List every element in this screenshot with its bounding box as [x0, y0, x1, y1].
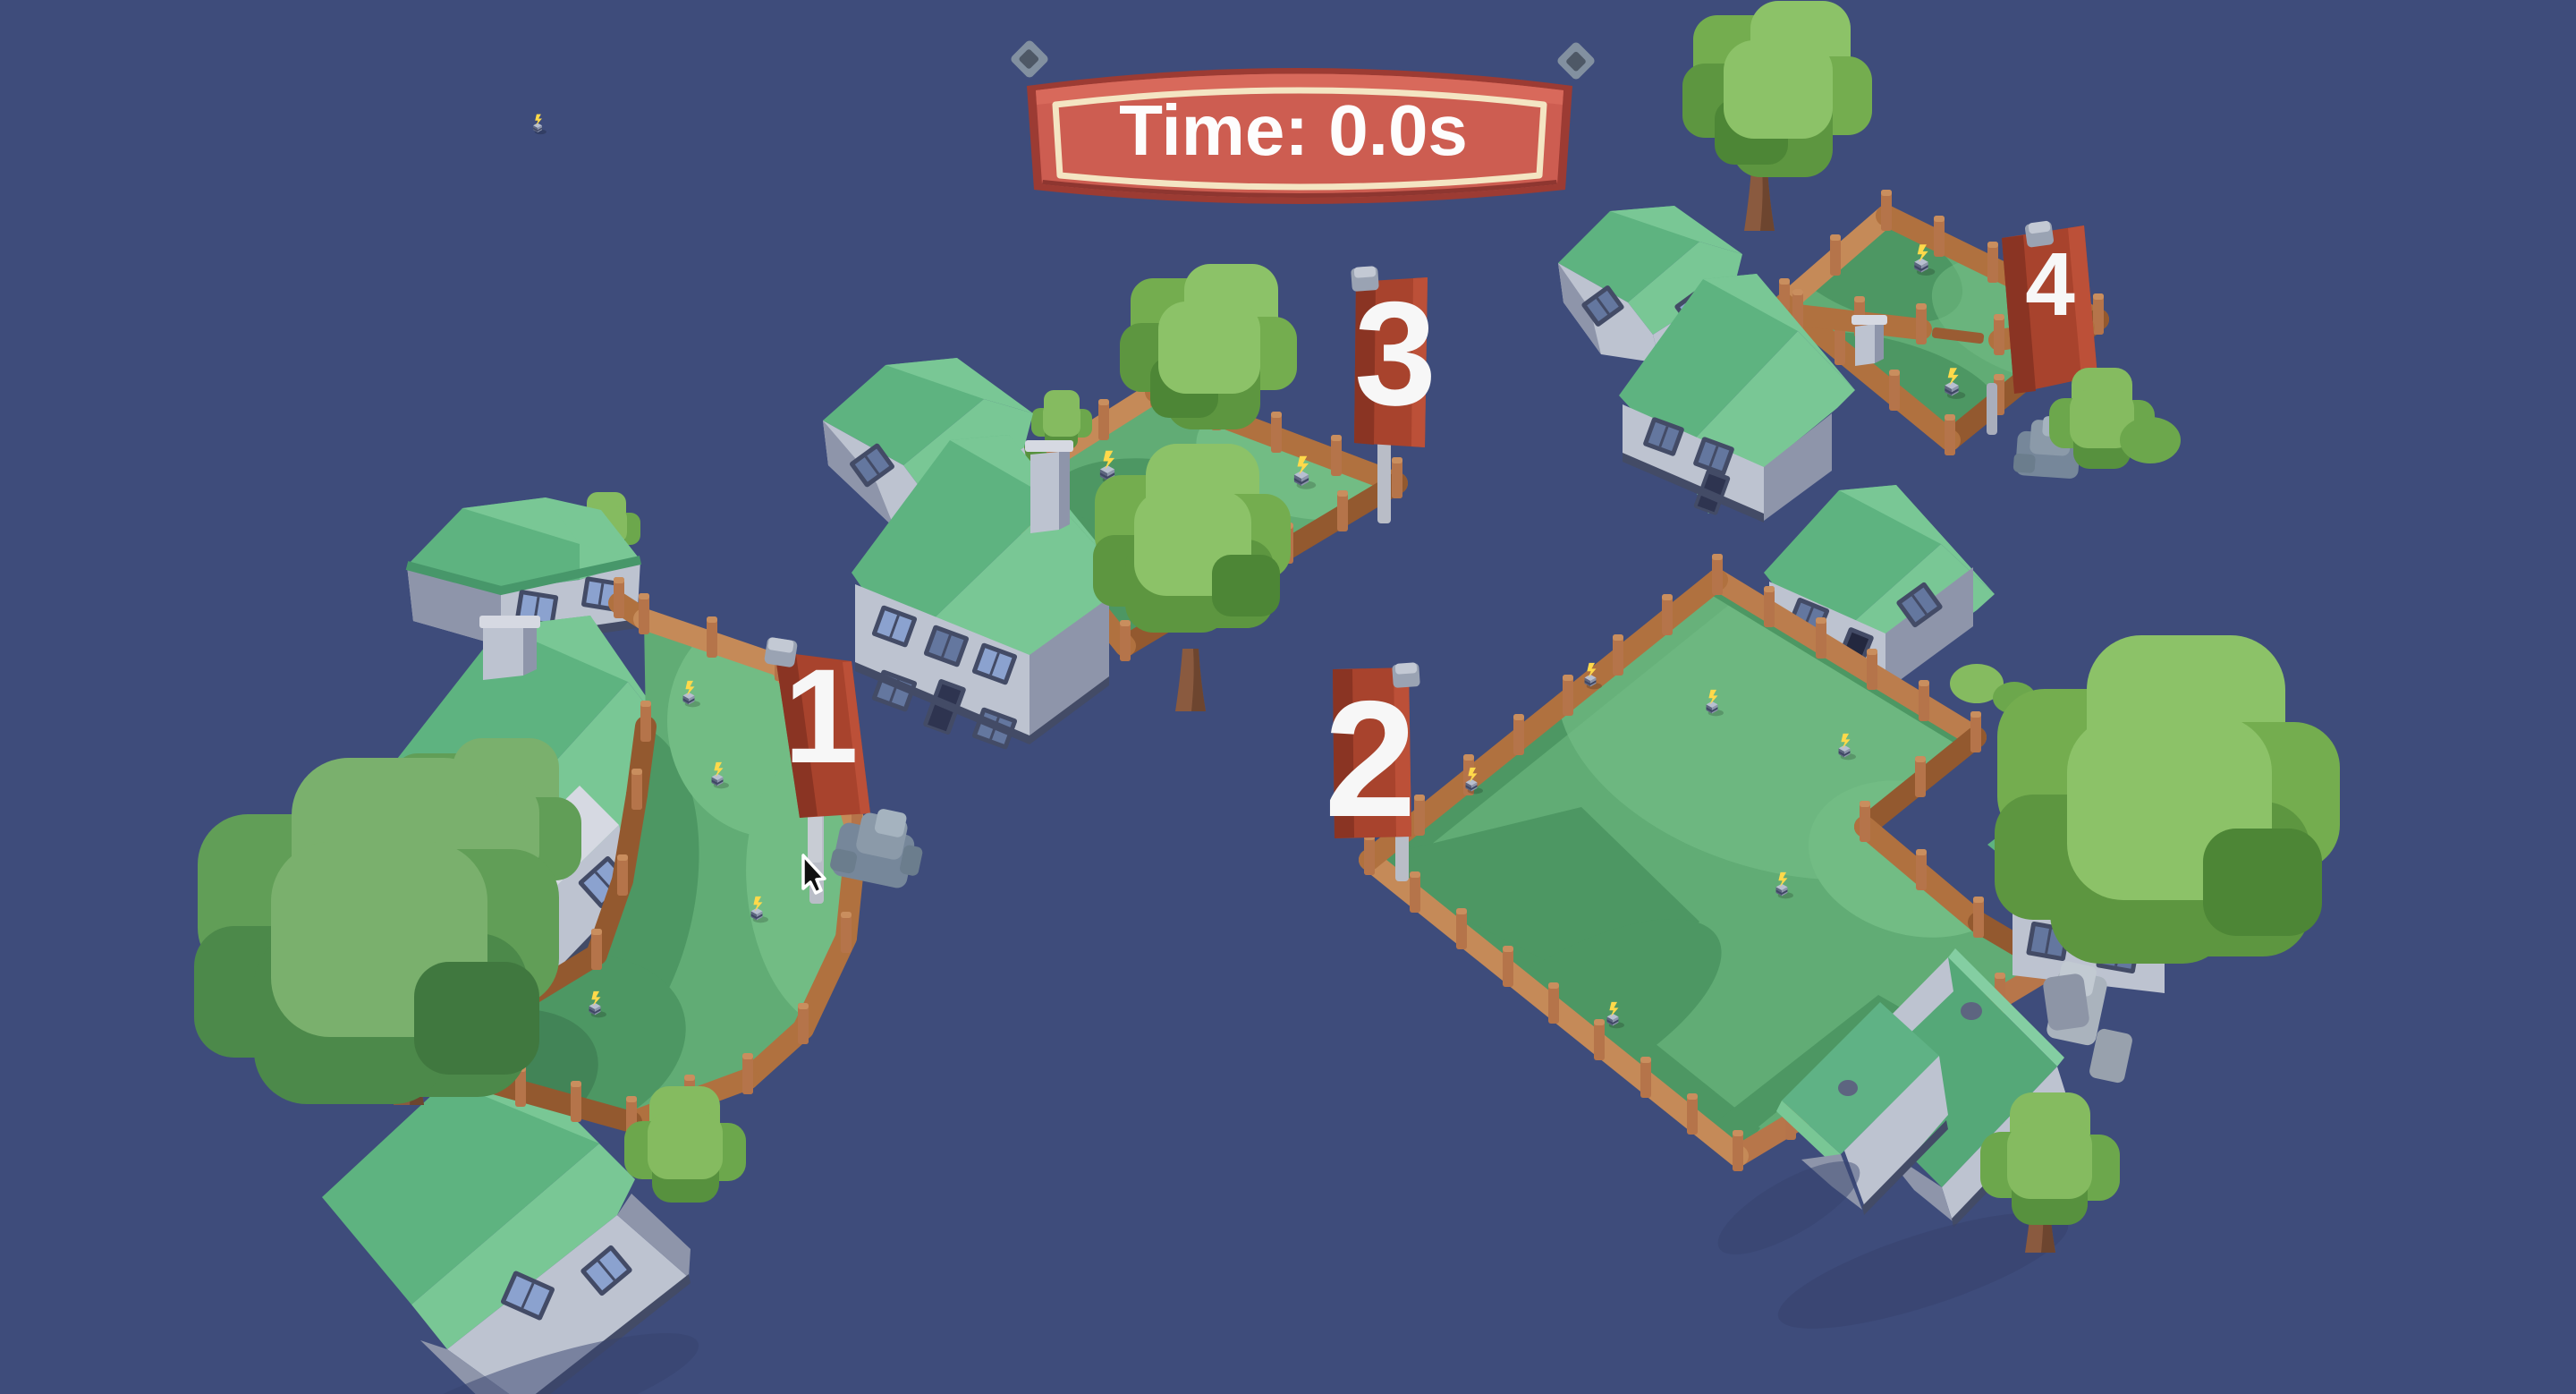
svg-text:3: 3 [1354, 271, 1436, 436]
svg-text:1: 1 [784, 641, 858, 791]
svg-text:Time: 0.0s: Time: 0.0s [1119, 90, 1468, 170]
svg-text:2: 2 [1325, 667, 1417, 852]
svg-text:4: 4 [2025, 234, 2075, 335]
